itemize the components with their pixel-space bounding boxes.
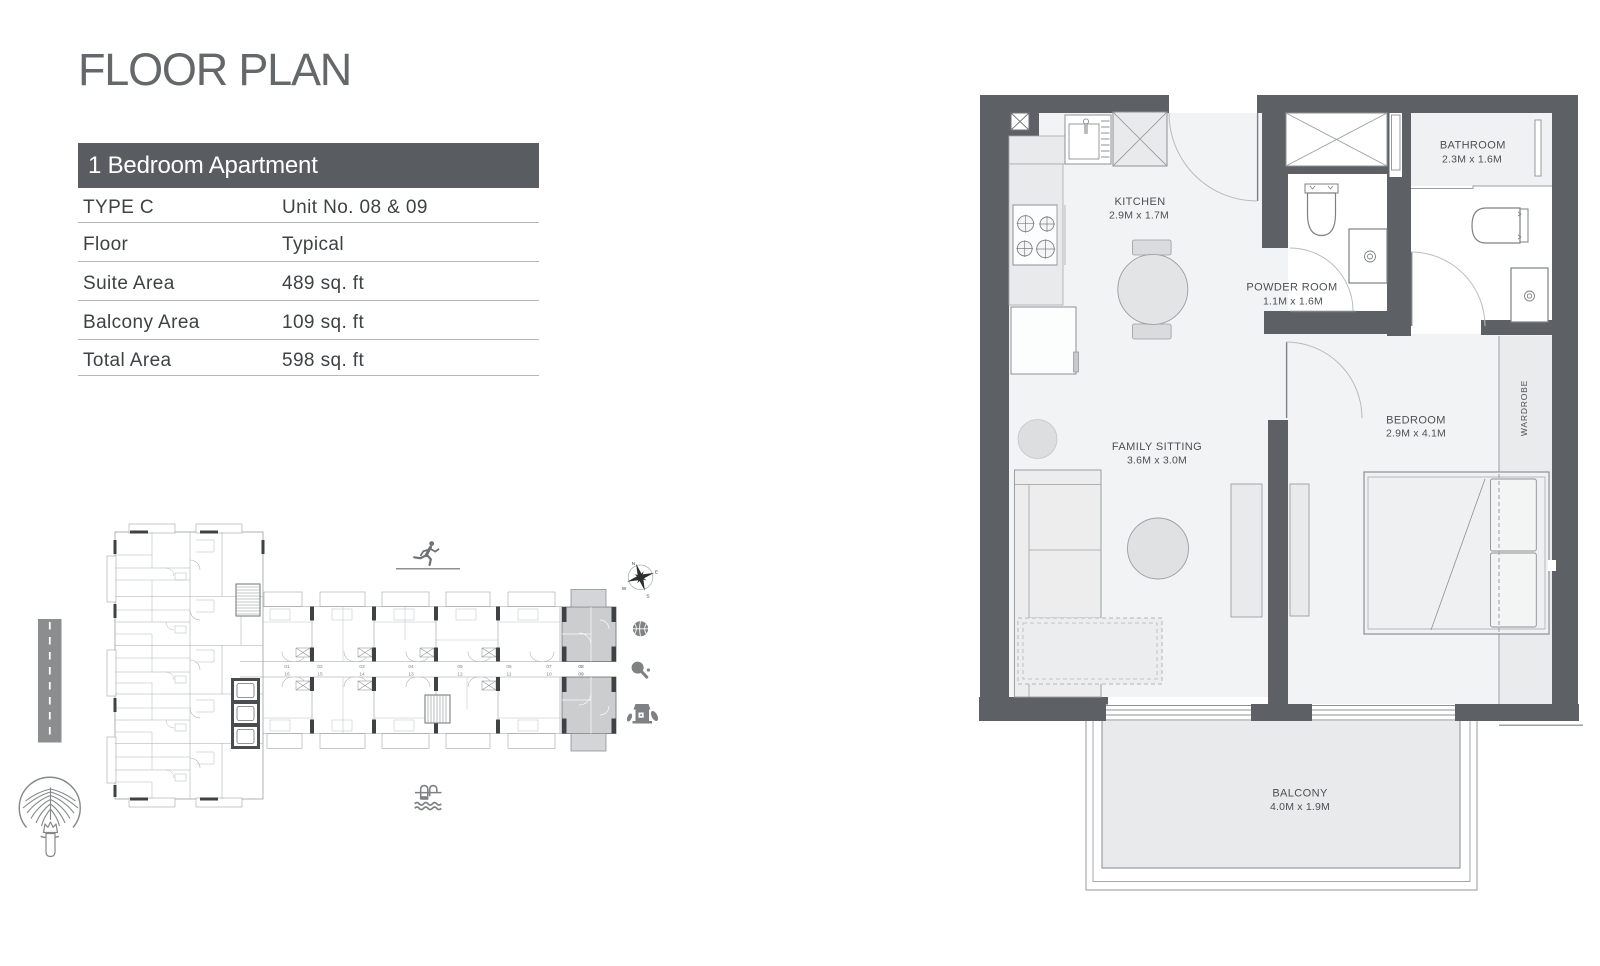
svg-text:N: N bbox=[632, 561, 636, 567]
svg-text:14: 14 bbox=[359, 672, 365, 678]
svg-text:BATHROOM: BATHROOM bbox=[1440, 140, 1506, 152]
svg-text:KITCHEN: KITCHEN bbox=[1114, 196, 1165, 208]
svg-text:2.9M x 4.1M: 2.9M x 4.1M bbox=[1386, 428, 1446, 440]
svg-text:E: E bbox=[655, 570, 658, 576]
svg-text:1.1M x 1.6M: 1.1M x 1.6M bbox=[1263, 296, 1323, 308]
svg-text:02: 02 bbox=[317, 664, 323, 670]
svg-text:12: 12 bbox=[457, 672, 463, 678]
svg-text:09: 09 bbox=[578, 672, 584, 678]
svg-text:4.0M x 1.9M: 4.0M x 1.9M bbox=[1270, 801, 1330, 813]
svg-text:06: 06 bbox=[506, 664, 512, 670]
svg-text:2.3M x 1.6M: 2.3M x 1.6M bbox=[1442, 154, 1502, 166]
svg-text:11: 11 bbox=[507, 672, 512, 678]
svg-text:04: 04 bbox=[408, 664, 414, 670]
svg-text:W: W bbox=[622, 586, 627, 592]
svg-text:15: 15 bbox=[317, 672, 323, 678]
svg-text:03: 03 bbox=[359, 664, 365, 670]
svg-text:16: 16 bbox=[284, 672, 290, 678]
svg-text:05: 05 bbox=[457, 664, 463, 670]
svg-text:01: 01 bbox=[284, 664, 290, 670]
svg-text:WARDROBE: WARDROBE bbox=[1519, 380, 1529, 436]
svg-text:FAMILY SITTING: FAMILY SITTING bbox=[1112, 441, 1202, 453]
svg-text:13: 13 bbox=[408, 672, 414, 678]
svg-text:S: S bbox=[646, 594, 649, 600]
svg-text:POWDER ROOM: POWDER ROOM bbox=[1246, 282, 1337, 294]
svg-text:08: 08 bbox=[578, 664, 584, 670]
svg-text:07: 07 bbox=[546, 664, 552, 670]
svg-text:BEDROOM: BEDROOM bbox=[1386, 415, 1446, 427]
svg-text:10: 10 bbox=[546, 672, 552, 678]
svg-text:3.6M x 3.0M: 3.6M x 3.0M bbox=[1127, 455, 1187, 467]
svg-text:2.9M x 1.7M: 2.9M x 1.7M bbox=[1109, 210, 1169, 222]
svg-text:BALCONY: BALCONY bbox=[1272, 788, 1328, 800]
